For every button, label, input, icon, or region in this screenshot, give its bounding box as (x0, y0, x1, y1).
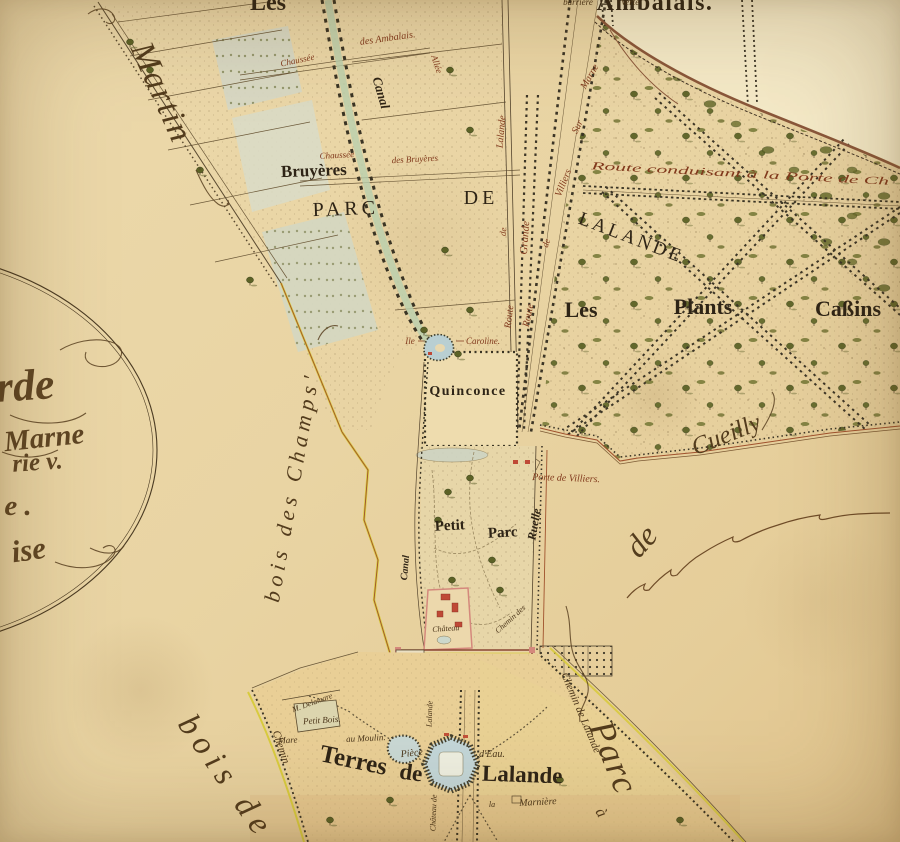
map-label-cart-rie: rie v. (11, 447, 63, 477)
map-label-parc-word: PARC (312, 197, 379, 221)
map-label-lalande-vert: Lalande (425, 700, 435, 728)
map-label-petit-parc-word: Parc (488, 524, 519, 542)
map-label-petit: Petit (434, 517, 465, 535)
map-label-chateau-de-vert: Château de (428, 794, 438, 831)
map-label-cart-rde: rde (0, 359, 56, 412)
map-label-grande: Grande (518, 220, 532, 254)
map-label-les: Les (250, 0, 286, 16)
map-label-cart-e: e . (4, 490, 31, 522)
map-label-ile: Ile (404, 336, 415, 346)
map-label-terres-de: de (398, 759, 424, 787)
map-label-deau: d'Eau. (479, 749, 505, 760)
map-label-terres-lalande: Lalande (482, 761, 563, 789)
map-label-marniere: Marnière (518, 796, 557, 809)
map-label-plants: Plants (674, 294, 733, 319)
map-label-la-marniere-la: la (489, 800, 495, 809)
map-label-de-word: DE (464, 187, 499, 209)
map-label-bruyeres: Bruyères (281, 160, 348, 181)
map-label-chateau: Château (432, 623, 460, 634)
map-label-chaussee-bruyeres: Chaussée (319, 149, 354, 161)
map-canvas: LesAmbalais.BruyèresPARCDELALANDELesPlan… (0, 0, 900, 842)
map-label-barriere: barrière (563, 0, 593, 7)
map-label-quinconce: Quinconce (429, 384, 506, 399)
antique-map-page: LesAmbalais.BruyèresPARCDELALANDELesPlan… (0, 0, 900, 842)
map-label-rdl-de: de (498, 227, 509, 236)
map-label-cart-ise: ise (9, 530, 48, 569)
map-label-ambalais: Ambalais. (597, 0, 714, 16)
map-label-verte: Verte (621, 0, 640, 7)
map-label-caroline: Caroline. (466, 336, 500, 346)
map-label-cassins: Caßins (815, 296, 881, 321)
map-label-canal-west: Canal (399, 555, 412, 581)
map-label-les-plants: Les (565, 297, 598, 322)
map-label-au-moulin: au Moulin. (346, 732, 386, 744)
